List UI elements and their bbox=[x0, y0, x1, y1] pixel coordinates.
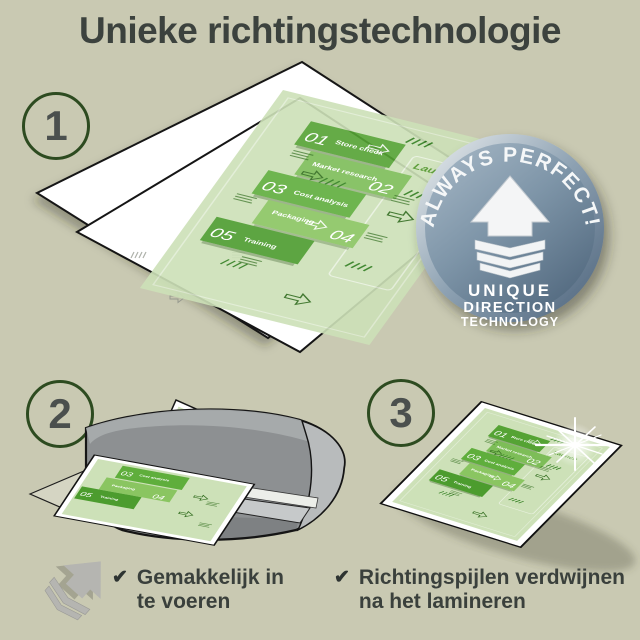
direction-arrow-icon bbox=[35, 541, 119, 626]
page-title: Unieke richtingstechnologie bbox=[0, 10, 640, 52]
checkmark-icon: ✔ bbox=[334, 567, 350, 614]
checkmark-icon: ✔ bbox=[112, 567, 128, 614]
checklist-item-text: Richtingspijlen verdwijnen na het lamine… bbox=[359, 566, 625, 614]
checklist-item-easy-feed: ✔ Gemakkelijk in te voeren bbox=[112, 566, 312, 614]
checklist-item-text: Gemakkelijk in te voeren bbox=[137, 566, 284, 614]
badge-line1: UNIQUE bbox=[468, 281, 552, 300]
badge-line3: TECHNOLOGY bbox=[461, 315, 559, 329]
badge-line2: DIRECTION bbox=[463, 300, 556, 316]
always-perfect-badge: ALWAYS PERFECT! UNIQUE DIRECTION TECHNOL… bbox=[398, 118, 626, 348]
infographic-canvas: Unieke richtingstechnologie Launch 01 St… bbox=[0, 0, 640, 640]
checklist-item-arrows-disappear: ✔ Richtingspijlen verdwijnen na het lami… bbox=[334, 566, 634, 614]
